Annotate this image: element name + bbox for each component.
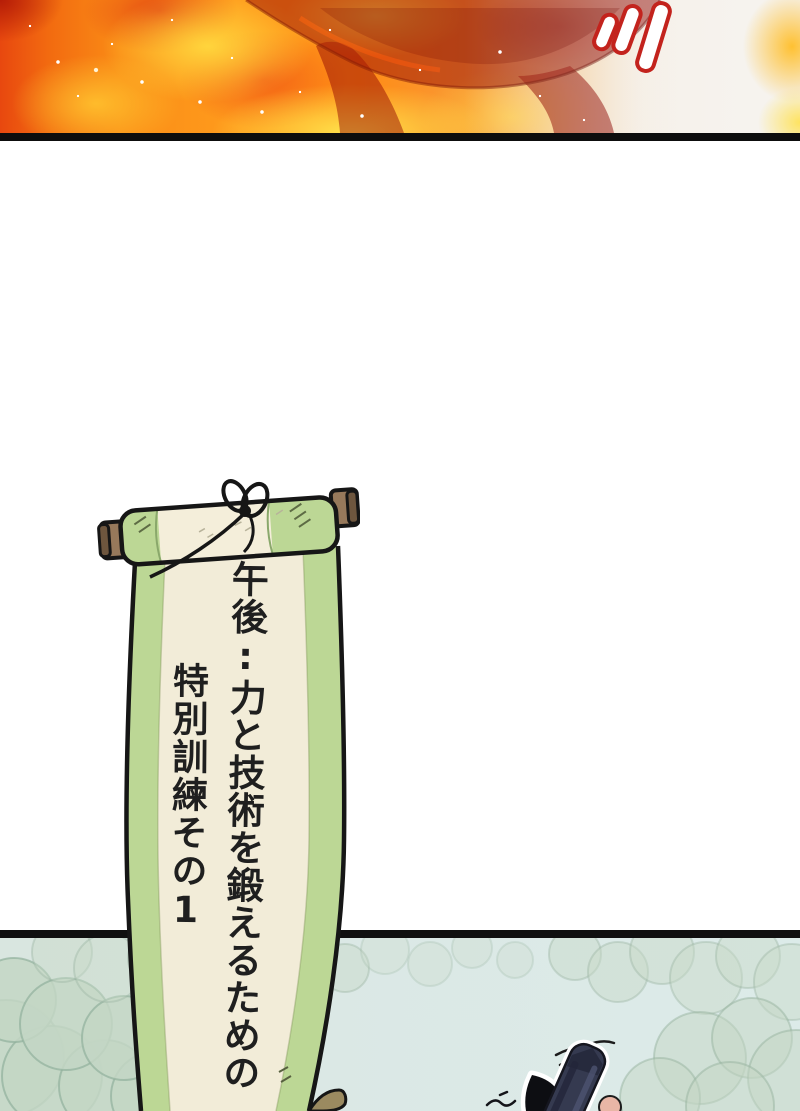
hanging-scroll: 午後:力と技術を鍛えるための 特別訓練その1 bbox=[95, 470, 360, 1111]
squiggle-mark-icon bbox=[487, 1092, 515, 1106]
manga-page: 午後:力と技術を鍛えるための 特別訓練その1 bbox=[0, 0, 800, 1111]
fire-panel bbox=[0, 0, 800, 141]
skin-detail bbox=[599, 1096, 621, 1111]
flame-sparkles bbox=[0, 0, 800, 133]
falling-weapon bbox=[470, 1033, 670, 1111]
scroll-title-column-sub: 特別訓練その1 bbox=[167, 662, 205, 933]
weapon-handle bbox=[540, 1040, 609, 1111]
bush-row-middle bbox=[361, 938, 533, 986]
scroll-title-column-main: 午後:力と技術を鍛えるための bbox=[219, 560, 265, 1092]
